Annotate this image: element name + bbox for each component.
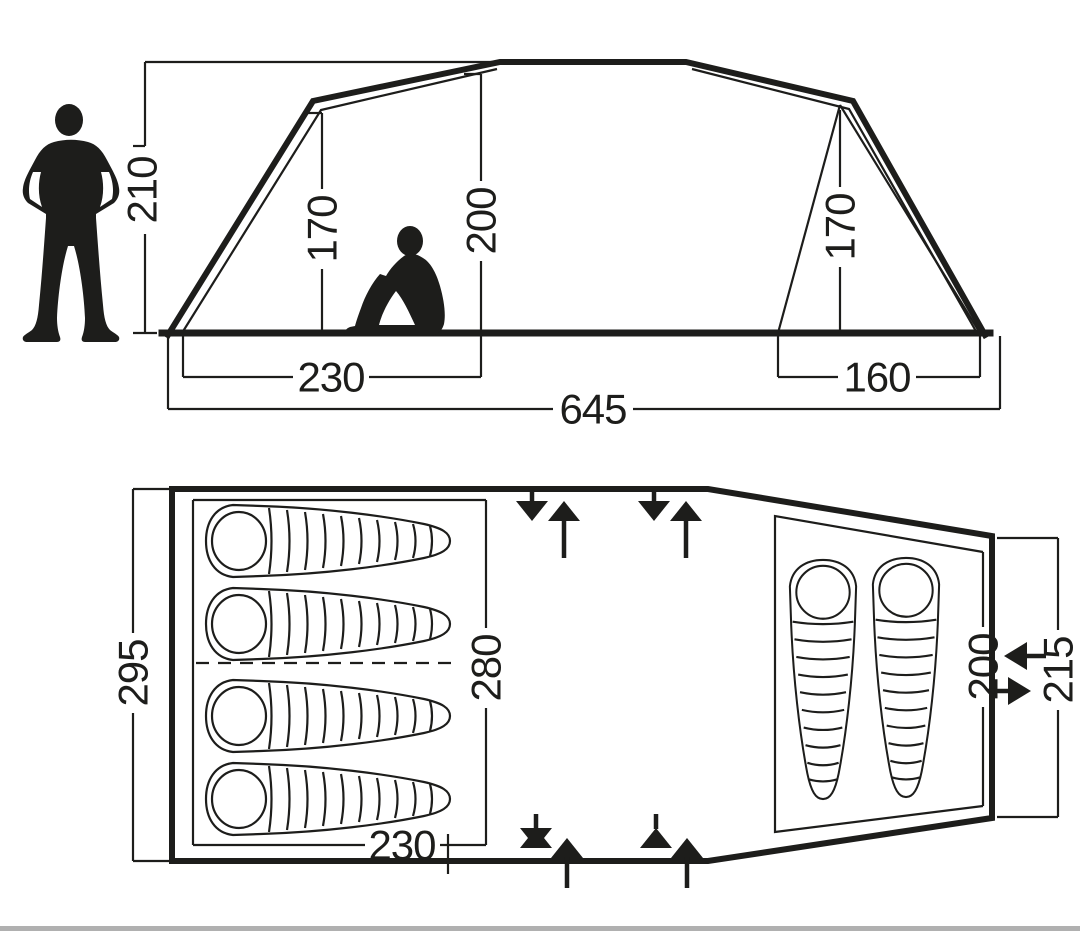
plan-right-inner-width-label: 200 [960,633,1007,700]
plan-right-total-width-label: 215 [1035,636,1080,703]
dimension-plan-total-width: 295 [110,489,172,861]
vent-arrow-in-icon [1004,642,1027,670]
standing-person-silhouette [23,104,120,342]
dimension-plan-room-length: 230 [368,822,448,875]
dimension-center-height: 200 [458,74,505,333]
diagram-canvas: 210 170 200 170 [0,0,1080,931]
right-room-height-label: 170 [817,193,864,260]
right-room-width-label: 160 [843,354,910,401]
vent-arrows-bottom [520,814,703,888]
vent-arrows-top [516,490,702,558]
vent-arrow-in-icon [638,501,670,521]
sleeping-bag-icon [206,505,450,577]
plan-total-width-label: 295 [110,639,157,706]
dimension-left-room-height: 170 [299,113,346,333]
vent-arrow-in-icon [516,501,548,521]
sleeping-bag-icon [206,588,450,660]
vent-arrow-in-icon [640,828,672,848]
vent-arrow-out-icon [1008,677,1031,705]
dimension-left-room-width: 230 [183,336,481,401]
rear-pole-triangle [778,105,980,333]
dimension-plan-right-total-width: 215 [997,538,1080,817]
vent-arrow-out-icon [670,501,702,521]
plan-room-length-label: 230 [368,822,435,869]
tent-dimension-diagram: 210 170 200 170 [0,0,1080,931]
sleeping-bag-icon [790,560,856,799]
left-room-height-label: 170 [299,195,346,262]
total-length-label: 645 [559,386,626,433]
left-room-width-label: 230 [297,354,364,401]
dimension-total-height: 210 [119,62,166,333]
bottom-border-bar [0,926,1080,931]
side-view: 210 170 200 170 [23,62,1000,433]
dimension-right-room-width: 160 [778,336,980,401]
vent-arrow-out-icon [548,501,580,521]
vent-arrow-out-icon [551,838,583,858]
center-height-label: 200 [458,187,505,254]
vent-arrow-out-icon [671,838,703,858]
sleeping-bag-icon [873,558,939,797]
dimension-right-room-height: 170 [817,110,864,333]
sleeping-bag-icon [206,680,450,752]
plan-inner-width-label: 280 [463,634,510,701]
total-height-label: 210 [119,156,166,223]
sitting-person-silhouette [344,226,445,336]
floor-plan: 295 280 230 200 215 [110,489,1080,888]
